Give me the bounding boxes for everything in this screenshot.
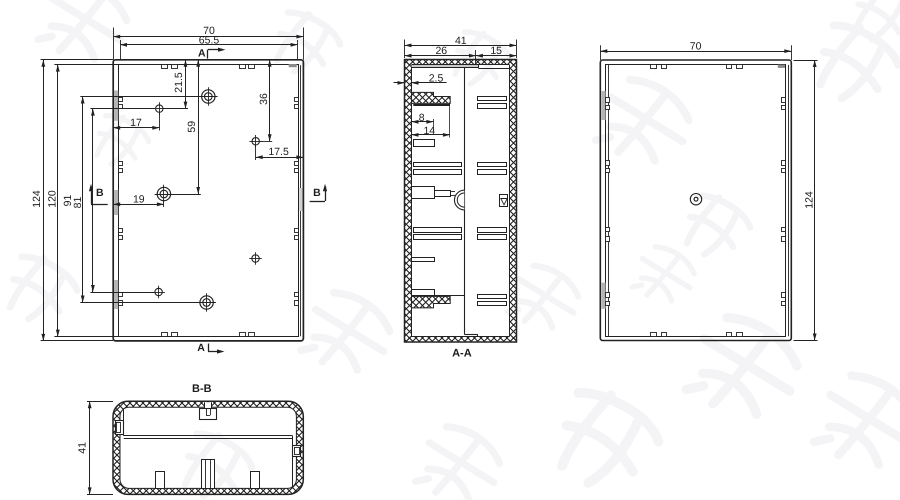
svg-text:81: 81: [72, 197, 84, 209]
svg-text:124: 124: [31, 190, 43, 208]
svg-text:26: 26: [435, 45, 447, 57]
svg-text:B: B: [96, 187, 104, 199]
svg-text:124: 124: [803, 191, 815, 209]
svg-text:120: 120: [46, 190, 58, 208]
svg-text:14: 14: [423, 125, 435, 137]
svg-text:70: 70: [690, 41, 702, 53]
svg-text:59: 59: [186, 121, 198, 133]
svg-text:B-B: B-B: [192, 383, 212, 395]
svg-text:41: 41: [76, 442, 88, 454]
svg-text:17.5: 17.5: [268, 146, 289, 158]
svg-text:B: B: [313, 187, 321, 199]
svg-text:19: 19: [133, 194, 145, 206]
svg-text:65.5: 65.5: [199, 34, 220, 46]
svg-text:36: 36: [258, 93, 270, 105]
svg-text:A: A: [198, 47, 206, 59]
svg-text:A-A: A-A: [452, 348, 472, 360]
svg-text:17: 17: [130, 117, 142, 129]
svg-text:41: 41: [455, 35, 467, 47]
svg-text:8: 8: [419, 112, 425, 124]
svg-text:21.5: 21.5: [173, 72, 185, 93]
svg-text:15: 15: [490, 45, 502, 57]
svg-text:A: A: [197, 342, 205, 354]
